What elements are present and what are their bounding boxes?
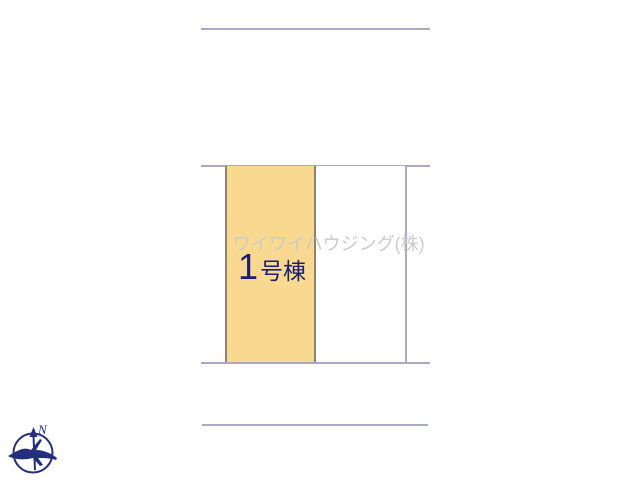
building-number: 1 xyxy=(238,249,260,285)
building-suffix: 号棟 xyxy=(260,260,306,283)
parcel-divider-line xyxy=(405,166,407,363)
boundary-line-top xyxy=(201,28,430,30)
north-compass-icon: N xyxy=(7,420,59,478)
parcel-adjacent xyxy=(316,166,405,363)
site-plan-canvas: ワイワイハウジング(株) 1 号棟 N xyxy=(0,0,640,480)
compass-north-label: N xyxy=(37,422,48,437)
building-1-label: 1 号棟 xyxy=(238,249,306,285)
compass-arrowhead xyxy=(30,427,38,437)
lot-boundary-line-lower xyxy=(201,362,430,364)
boundary-line-bottom xyxy=(202,424,428,426)
